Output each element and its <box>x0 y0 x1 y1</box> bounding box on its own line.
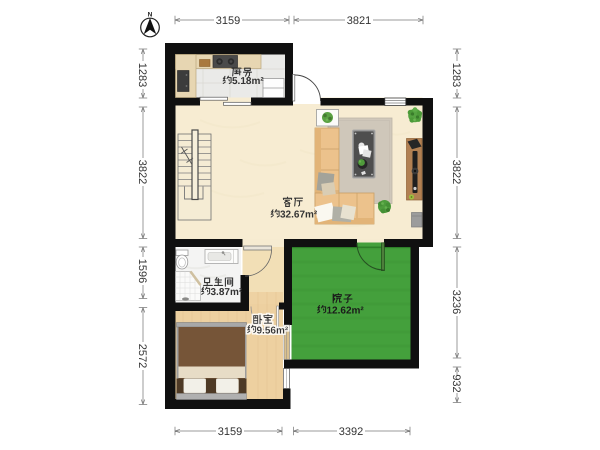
svg-text:3159: 3159 <box>216 15 240 27</box>
svg-text:1596: 1596 <box>136 259 148 283</box>
svg-text:12.62m²: 12.62m² <box>327 305 365 316</box>
svg-text:3822: 3822 <box>136 160 148 184</box>
svg-text:9.56m²: 9.56m² <box>257 325 289 336</box>
svg-text:1283: 1283 <box>136 63 148 87</box>
svg-text:3.87m²: 3.87m² <box>211 287 243 298</box>
svg-text:N: N <box>148 12 153 19</box>
svg-text:932: 932 <box>450 374 462 392</box>
svg-text:3236: 3236 <box>450 290 462 314</box>
svg-text:3159: 3159 <box>218 426 242 438</box>
svg-text:2572: 2572 <box>136 344 148 368</box>
svg-text:3821: 3821 <box>347 15 371 27</box>
svg-text:1283: 1283 <box>450 63 462 87</box>
svg-text:3822: 3822 <box>450 160 462 184</box>
svg-text:3392: 3392 <box>339 426 363 438</box>
svg-text:5.18m²: 5.18m² <box>232 76 264 87</box>
svg-text:32.67m²: 32.67m² <box>280 210 318 221</box>
